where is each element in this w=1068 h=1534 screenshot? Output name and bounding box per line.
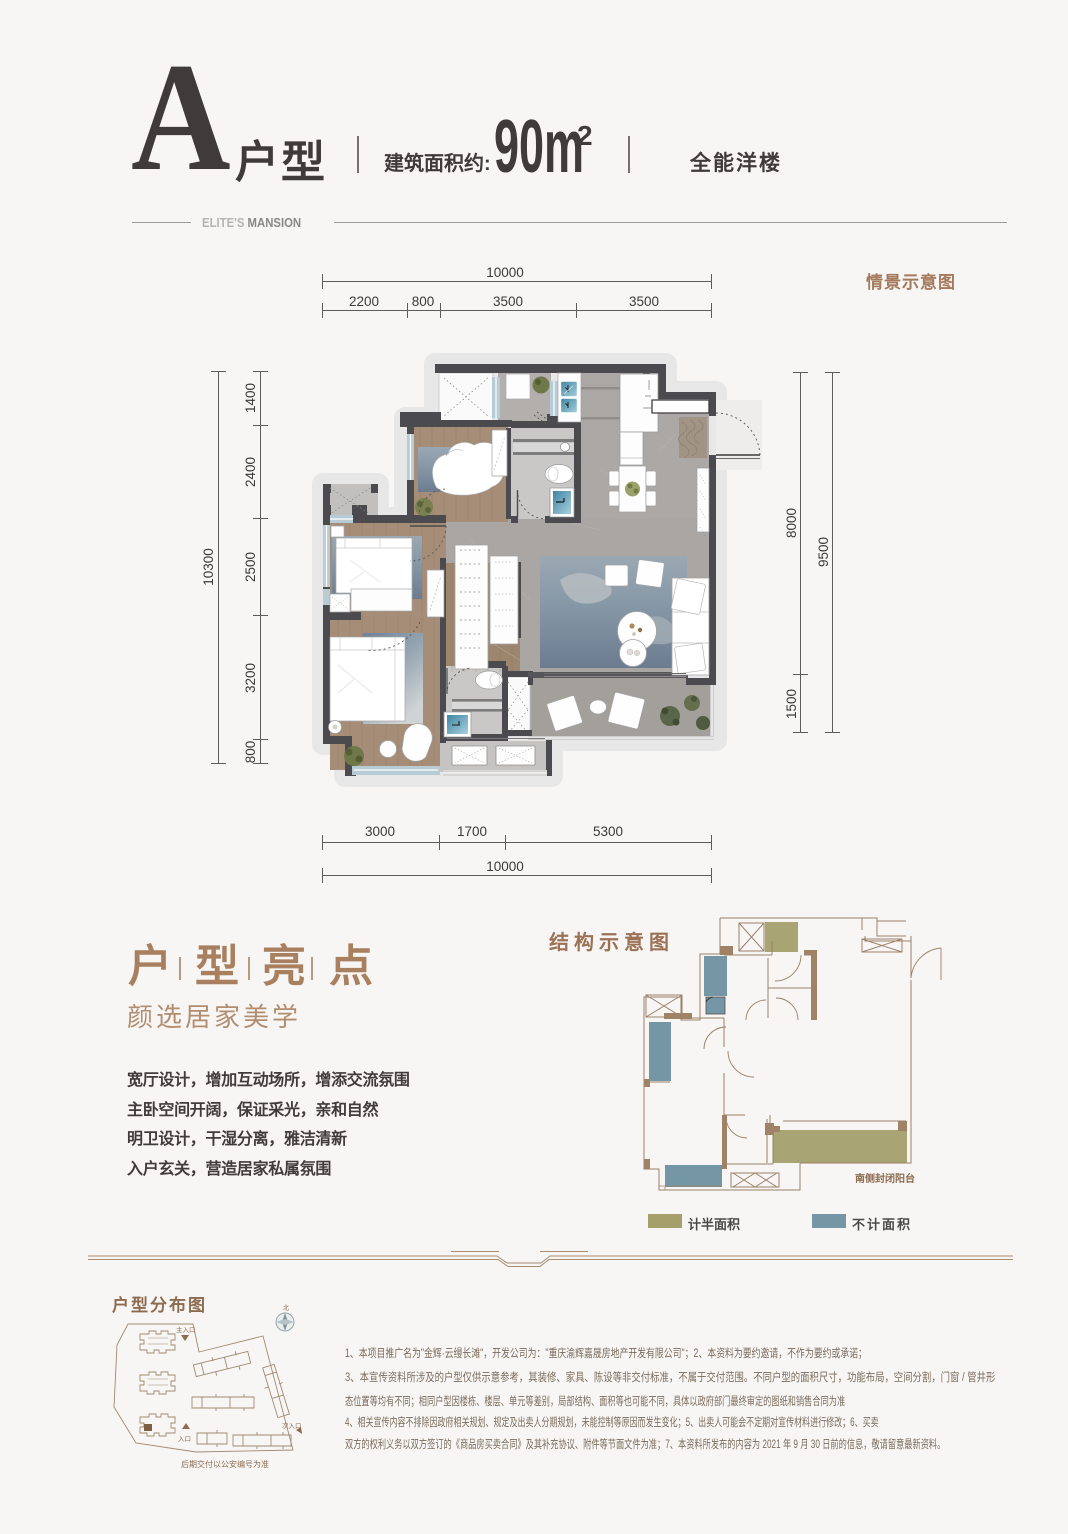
svg-text:800: 800 [243, 741, 258, 764]
svg-text:10000: 10000 [486, 859, 524, 874]
svg-text:北: 北 [283, 1304, 289, 1312]
svg-text:主入口: 主入口 [176, 1325, 196, 1334]
svg-text:3500: 3500 [493, 294, 523, 309]
svg-text:8000: 8000 [784, 508, 799, 538]
svg-text:南侧封闭阳台: 南侧封闭阳台 [855, 1172, 915, 1185]
svg-text:2200: 2200 [349, 294, 379, 309]
svg-text:9500: 9500 [816, 537, 831, 567]
svg-text:3000: 3000 [365, 824, 395, 839]
svg-text:10000: 10000 [486, 265, 524, 280]
svg-text:800: 800 [412, 294, 435, 309]
svg-text:1700: 1700 [457, 824, 487, 839]
svg-text:1400: 1400 [243, 383, 258, 413]
svg-text:3200: 3200 [243, 663, 258, 693]
svg-text:2500: 2500 [243, 552, 258, 582]
svg-text:10300: 10300 [201, 548, 216, 586]
svg-text:入口: 入口 [178, 1435, 191, 1443]
svg-text:3500: 3500 [629, 294, 659, 309]
svg-text:2400: 2400 [243, 457, 258, 487]
svg-text:5300: 5300 [593, 824, 623, 839]
svg-text:后期交付以公安编号为准: 后期交付以公安编号为准 [181, 1459, 269, 1469]
svg-text:1500: 1500 [784, 689, 799, 719]
